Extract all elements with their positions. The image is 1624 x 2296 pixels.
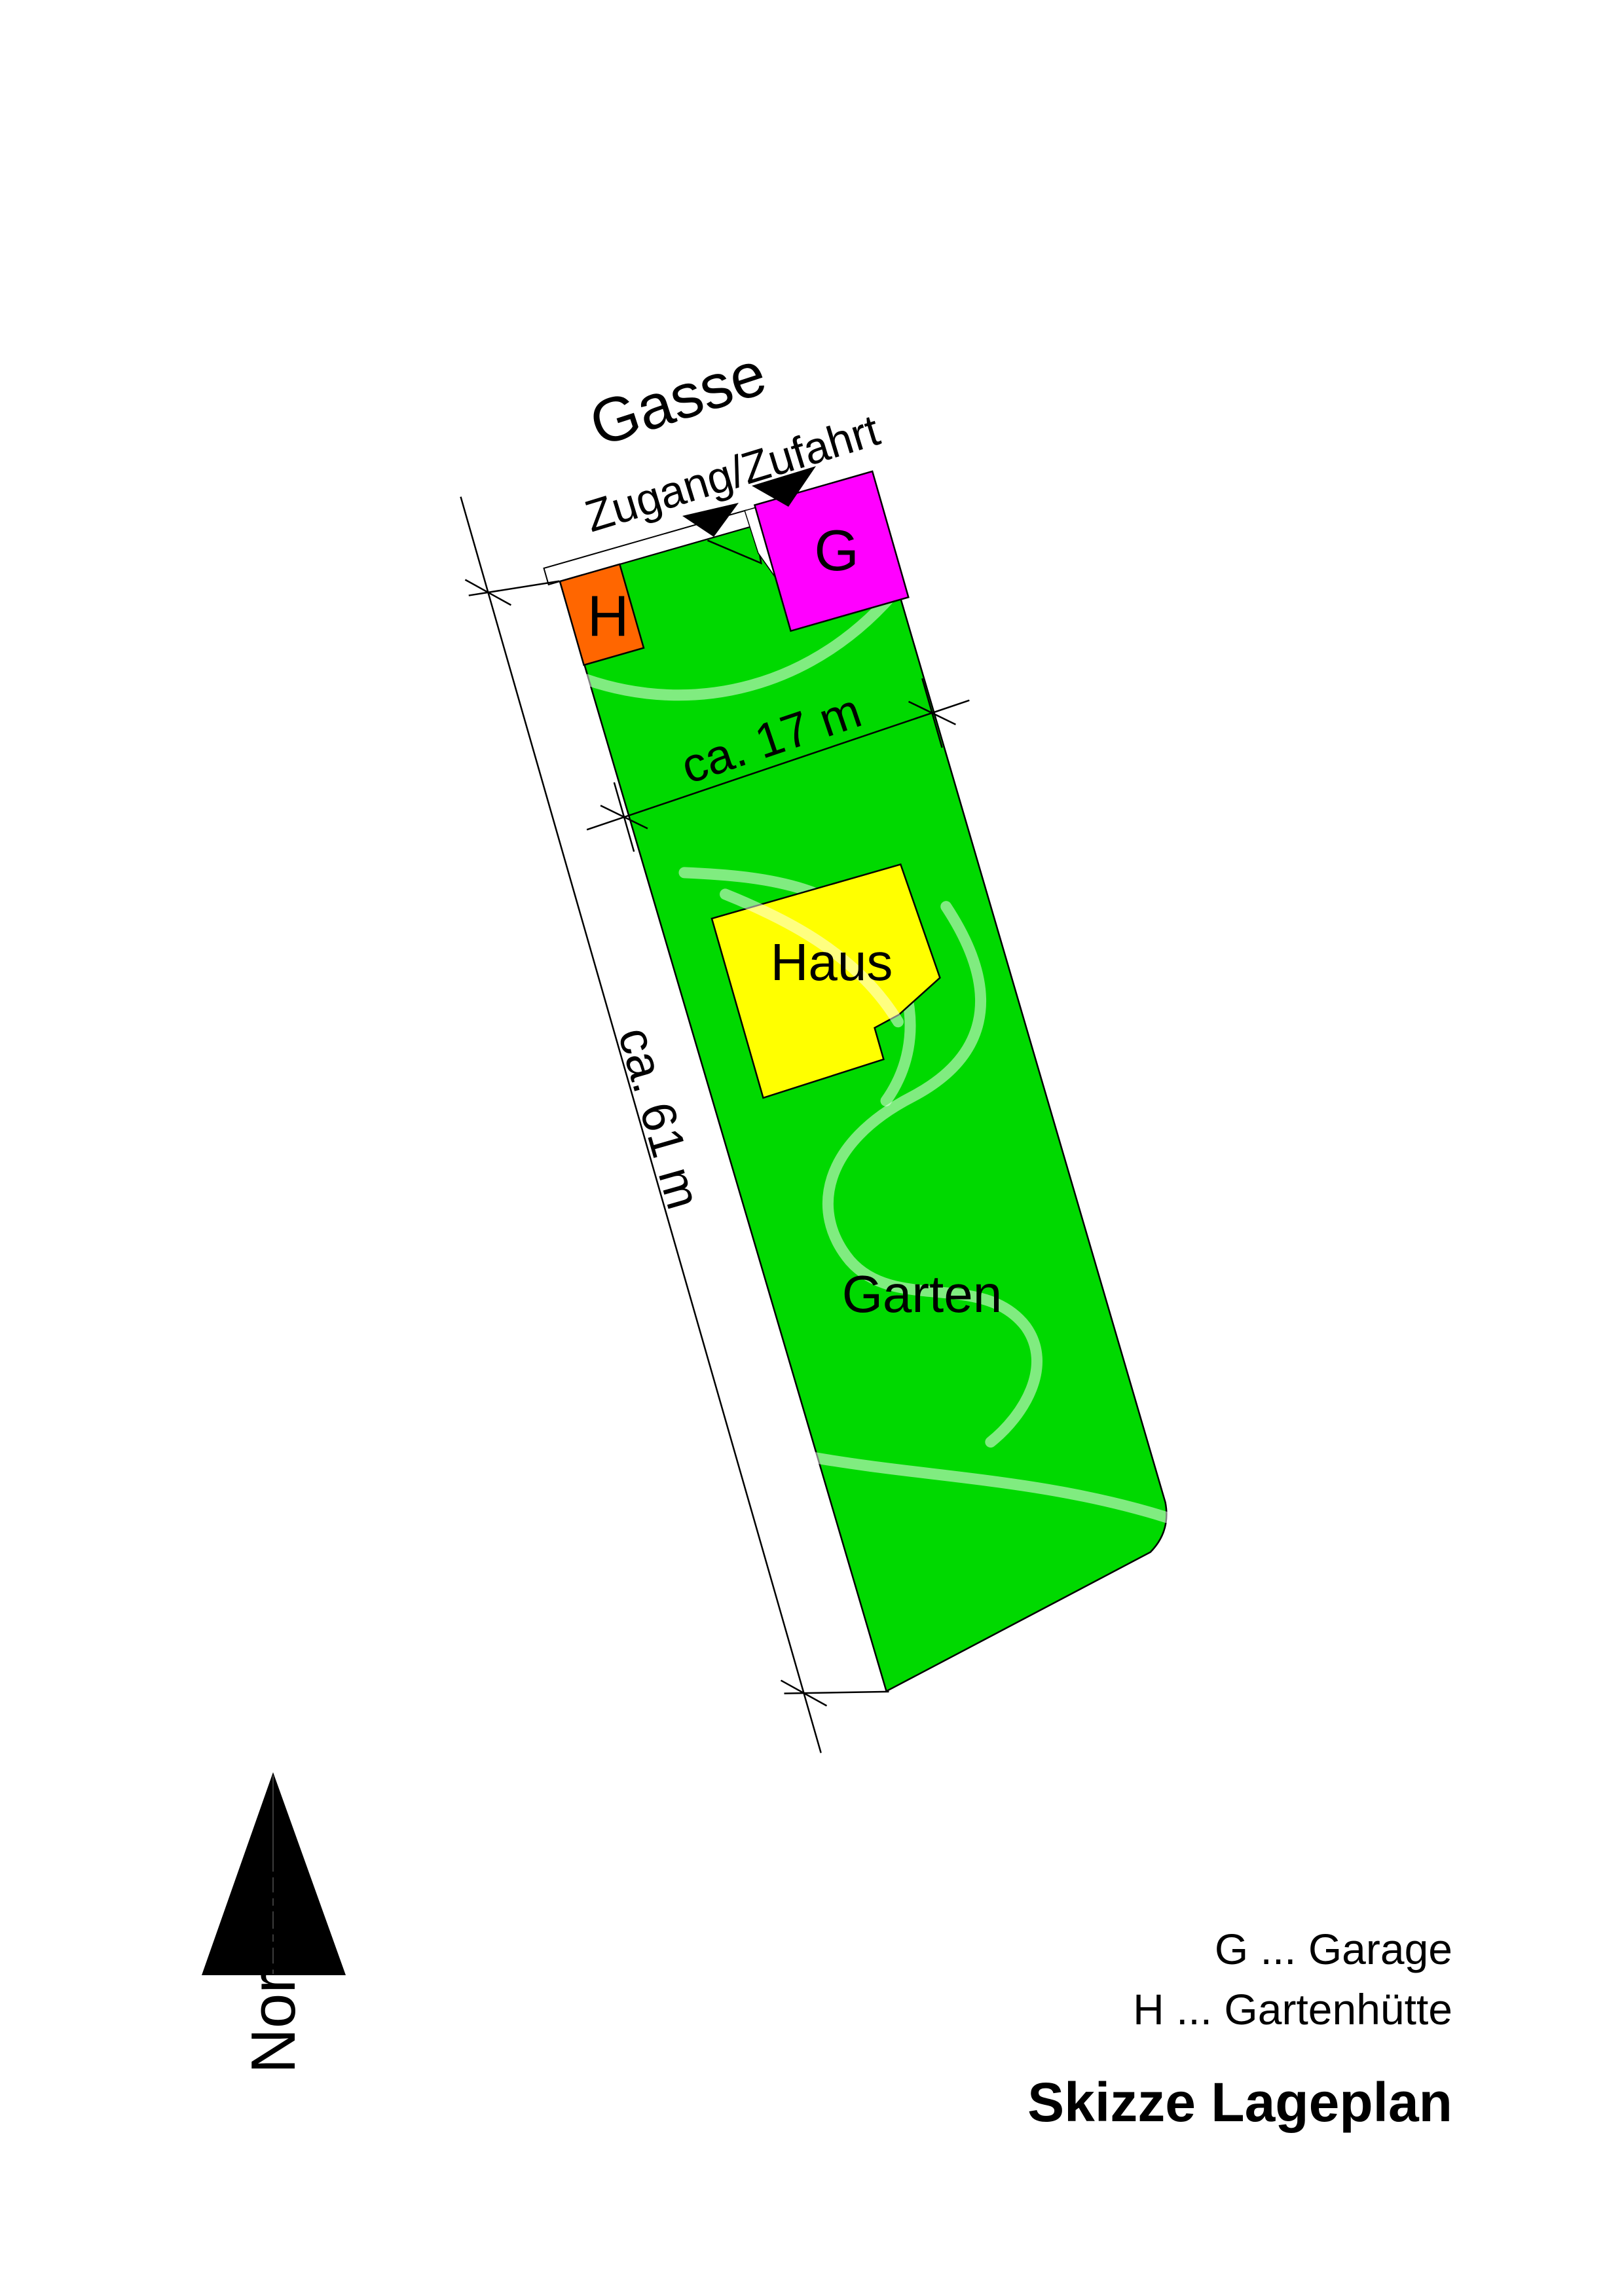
legend-huette-entry: H ... Gartenhütte [1133, 1985, 1452, 2033]
dim-tick [781, 1652, 889, 1719]
huette-label: H [587, 583, 629, 648]
length-dimension-label: ca. 61 m [608, 1021, 711, 1215]
site-plan-drawing: H G Haus Garten ca. 17 m ca. 61 m Gasse … [0, 0, 1624, 2296]
site-plan-page: H G Haus Garten ca. 17 m ca. 61 m Gasse … [0, 0, 1624, 2296]
legend-garage-entry: G ... Garage [1215, 1925, 1452, 1973]
garden-label: Garten [842, 1265, 1003, 1323]
garage-label: G [814, 518, 858, 583]
house-label: Haus [771, 933, 893, 991]
parcel-group: H G Haus Garten ca. 17 m ca. 61 m [442, 378, 1237, 1758]
street-label: Gasse [581, 338, 774, 460]
dim-tick [464, 555, 562, 616]
page-title: Skizze Lageplan [1027, 2071, 1452, 2133]
